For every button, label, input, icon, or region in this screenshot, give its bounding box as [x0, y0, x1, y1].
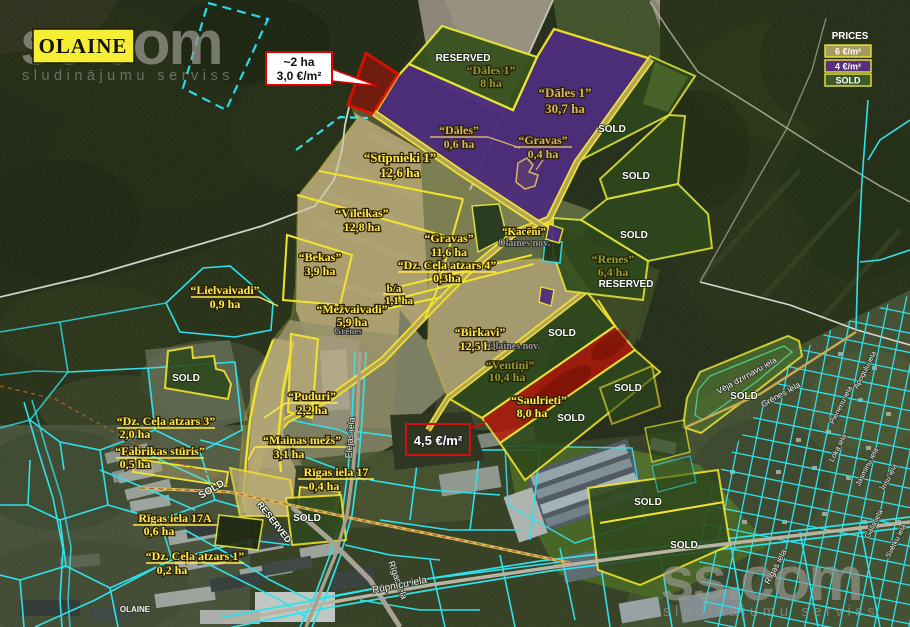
svg-text:“Vīleikas”: “Vīleikas”	[335, 206, 388, 220]
svg-text:SOLD: SOLD	[293, 513, 321, 524]
svg-text:“Stīpnieki 1”: “Stīpnieki 1”	[364, 150, 437, 165]
svg-text:“Puduri”: “Puduri”	[288, 389, 336, 403]
svg-text:“Lielvaivadi”: “Lielvaivadi”	[190, 283, 259, 297]
svg-text:“Dāles 1”: “Dāles 1”	[467, 63, 516, 77]
svg-text:2,0 ha: 2,0 ha	[120, 427, 151, 441]
svg-text:“Saulrieti”: “Saulrieti”	[511, 393, 567, 407]
svg-text:sludinājumu serviss: sludinājumu serviss	[663, 603, 879, 620]
svg-text:SOLD: SOLD	[634, 497, 662, 508]
svg-text:8 ha: 8 ha	[480, 76, 502, 90]
svg-text:“Birkavi”: “Birkavi”	[455, 325, 506, 339]
svg-text:“Gravas”: “Gravas”	[518, 133, 567, 147]
svg-text:0,9 ha: 0,9 ha	[210, 297, 241, 311]
svg-text:4,5 €/m²: 4,5 €/m²	[414, 433, 463, 448]
svg-text:OLAINE: OLAINE	[39, 34, 128, 58]
svg-text:0,6 ha: 0,6 ha	[144, 524, 175, 538]
svg-text:“Dz. Ceļa atzars 1”: “Dz. Ceļa atzars 1”	[146, 549, 245, 564]
svg-text:~2 ha: ~2 ha	[283, 55, 314, 69]
svg-text:SOLD: SOLD	[730, 391, 758, 402]
svg-text:0,4 ha: 0,4 ha	[309, 479, 340, 493]
svg-text:6 €/m²: 6 €/m²	[835, 47, 861, 57]
svg-text:“Dāles”: “Dāles”	[439, 123, 479, 137]
svg-text:11,6 ha: 11,6 ha	[431, 245, 467, 259]
svg-text:0,3ha: 0,3ha	[433, 271, 461, 285]
svg-text:30,7 ha: 30,7 ha	[545, 101, 585, 116]
svg-text:sludinājumu serviss: sludinājumu serviss	[22, 68, 234, 84]
svg-text:3,0 €/m²: 3,0 €/m²	[277, 69, 322, 83]
svg-text:8,0 ha: 8,0 ha	[517, 406, 548, 420]
svg-text:“Maiņas mežs”: “Maiņas mežs”	[263, 433, 341, 448]
svg-text:0,2 ha: 0,2 ha	[157, 563, 188, 577]
svg-text:3,1 ha: 3,1 ha	[274, 447, 305, 461]
svg-text:SOLD: SOLD	[614, 383, 642, 394]
svg-text:6,4 ha: 6,4 ha	[598, 265, 629, 279]
svg-text:SOLD: SOLD	[548, 328, 576, 339]
svg-text:12,8 ha: 12,8 ha	[344, 220, 381, 234]
svg-text:10,4 ha: 10,4 ha	[489, 370, 526, 384]
svg-text:RESERVED: RESERVED	[436, 53, 491, 64]
svg-text:2,2 ha: 2,2 ha	[297, 403, 328, 417]
svg-text:“Bekas”: “Bekas”	[299, 250, 342, 264]
svg-text:SOLD: SOLD	[598, 124, 626, 135]
svg-text:“Renes”: “Renes”	[592, 252, 635, 266]
svg-text:Rīgas iela 17A: Rīgas iela 17A	[138, 511, 212, 525]
svg-text:SOLD: SOLD	[622, 171, 650, 182]
svg-text:3,9 ha: 3,9 ha	[305, 264, 336, 278]
svg-text:“Gravas”: “Gravas”	[424, 231, 473, 245]
svg-text:“Mežvaivadi”: “Mežvaivadi”	[316, 302, 387, 316]
svg-text:“Kacēni”: “Kacēni”	[502, 226, 546, 238]
svg-text:OLAINE: OLAINE	[120, 605, 151, 614]
svg-text:Rīgas iela 17: Rīgas iela 17	[304, 465, 369, 479]
svg-text:4 €/m²: 4 €/m²	[835, 62, 861, 72]
svg-text:“Fabrikas stūris”: “Fabrikas stūris”	[115, 444, 205, 458]
svg-text:b/a: b/a	[387, 283, 402, 295]
svg-text:SOLD: SOLD	[557, 413, 585, 424]
svg-text:Olaines nov.: Olaines nov.	[488, 341, 541, 352]
svg-text:SOLD: SOLD	[172, 373, 200, 384]
svg-text:0,6 ha: 0,6 ha	[444, 137, 475, 151]
svg-text:Olaines nov.: Olaines nov.	[498, 238, 551, 249]
svg-text:0,4 ha: 0,4 ha	[528, 147, 559, 161]
svg-text:SOLD: SOLD	[620, 230, 648, 241]
svg-text:RESERVED: RESERVED	[599, 279, 654, 290]
svg-text:PRICES: PRICES	[832, 31, 869, 42]
svg-text:12,6 ha: 12,6 ha	[380, 165, 420, 180]
svg-text:Grēnes: Grēnes	[334, 326, 362, 336]
svg-text:SOLD: SOLD	[835, 76, 861, 86]
svg-text:0,5 ha: 0,5 ha	[120, 457, 151, 471]
svg-text:1,1 ha: 1,1 ha	[385, 295, 414, 307]
svg-text:“Dāles 1”: “Dāles 1”	[538, 85, 591, 100]
